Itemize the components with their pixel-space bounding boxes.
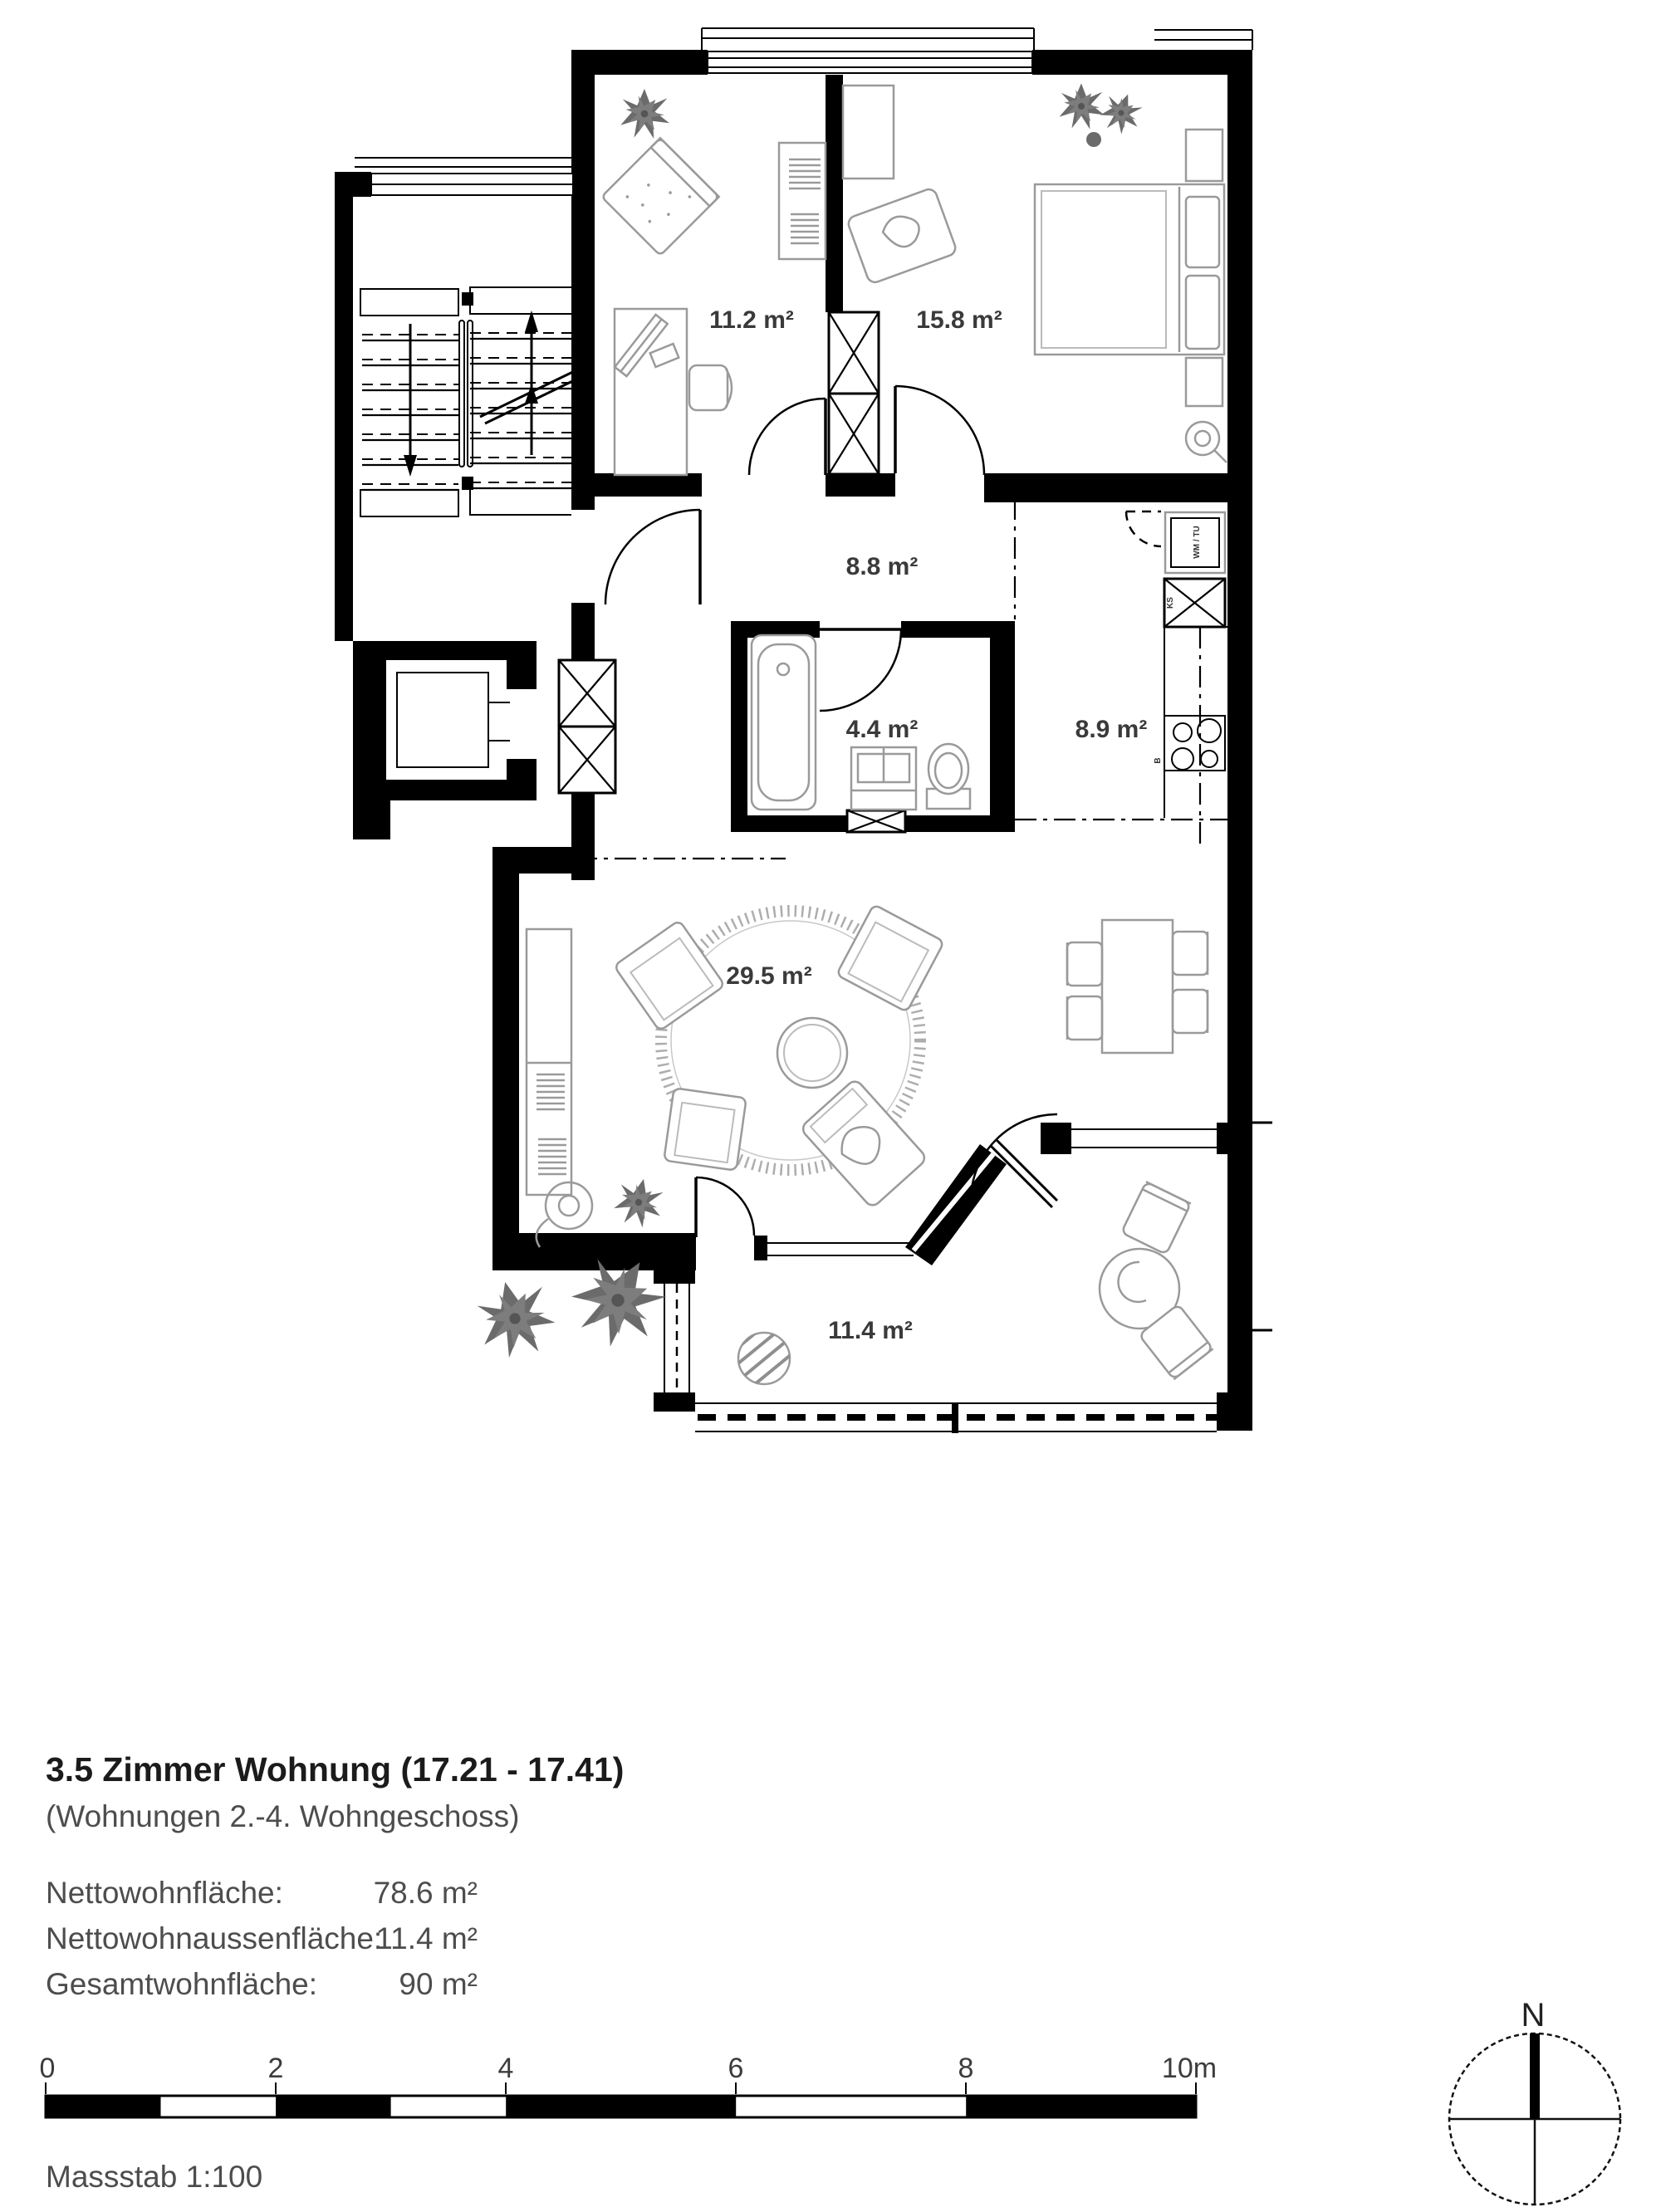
net-area-label: Nettowohnfläche: bbox=[46, 1876, 283, 1910]
bedroom-armchair bbox=[846, 187, 958, 284]
wall-symbol bbox=[1186, 422, 1227, 462]
north-compass: N bbox=[1449, 1997, 1620, 2205]
cooktop bbox=[1164, 716, 1225, 771]
outdoor-area-label: Nettowohnaussenfläche: bbox=[46, 1921, 382, 1955]
washbasin bbox=[851, 747, 916, 810]
living-area-label: 29.5 m² bbox=[726, 962, 811, 990]
terrace-area-label: 11.4 m² bbox=[828, 1317, 913, 1344]
info-block: 3.5 Zimmer Wohnung (17.21 - 17.41) (Wohn… bbox=[46, 1750, 624, 2001]
office-area-label: 11.2 m² bbox=[709, 306, 794, 334]
toilet bbox=[927, 744, 970, 809]
outdoor-area-value: 11.4 m² bbox=[375, 1921, 478, 1955]
scale-tick-0: 0 bbox=[40, 2053, 56, 2084]
sideboard bbox=[527, 929, 571, 1195]
side-table bbox=[777, 1018, 847, 1088]
scale-tick-6: 6 bbox=[728, 2053, 744, 2084]
north-needle bbox=[1530, 2033, 1540, 2119]
entry-door-opening bbox=[571, 510, 595, 603]
scale-tick-10: 10m bbox=[1162, 2053, 1217, 2084]
stair-arrow-down bbox=[404, 324, 417, 477]
floorplan-page: WM / TU KS B bbox=[0, 0, 1661, 2212]
scale-tick-4: 4 bbox=[498, 2053, 514, 2084]
kitchen-fixtures: WM / TU KS B bbox=[1154, 512, 1227, 847]
bath-area-label: 4.4 m² bbox=[846, 716, 919, 743]
top-window bbox=[708, 51, 1032, 73]
total-area-label: Gesamtwohnfläche: bbox=[46, 1967, 317, 2001]
staircase bbox=[360, 287, 588, 516]
wardrobe bbox=[843, 86, 894, 179]
chaise-lounge bbox=[800, 1079, 928, 1209]
scale-caption: Massstab 1:100 bbox=[46, 2160, 262, 2194]
fridge-label: KS bbox=[1166, 597, 1175, 609]
terrace-chair bbox=[1139, 1304, 1213, 1380]
terrace-furniture bbox=[469, 1182, 1213, 1408]
washer-dryer-label: WM / TU bbox=[1193, 526, 1202, 558]
dining-table-set bbox=[1067, 920, 1208, 1053]
scale-tick-2: 2 bbox=[268, 2053, 284, 2084]
office-daybed bbox=[601, 138, 718, 255]
nightstand bbox=[1186, 358, 1222, 406]
floor-plan-drawing: WM / TU KS B bbox=[0, 0, 1661, 2212]
bathtub bbox=[752, 635, 816, 810]
terrace-chair bbox=[1121, 1182, 1191, 1254]
total-area-value: 90 m² bbox=[399, 1967, 478, 2001]
living-furniture bbox=[527, 904, 1208, 1247]
bedroom-furniture bbox=[843, 83, 1227, 462]
plant-icon bbox=[620, 89, 669, 139]
hall-area-label: 8.8 m² bbox=[846, 553, 919, 580]
elevator bbox=[353, 641, 537, 800]
scale-tick-8: 8 bbox=[958, 2053, 974, 2084]
bedroom-area-label: 15.8 m² bbox=[916, 306, 1002, 334]
planter-pot bbox=[731, 1312, 811, 1408]
nightstand bbox=[1186, 130, 1222, 181]
office-chair bbox=[689, 365, 732, 410]
armchair bbox=[664, 1088, 746, 1170]
net-area-value: 78.6 m² bbox=[374, 1876, 478, 1910]
north-label: N bbox=[1521, 1997, 1546, 2033]
plan-subtitle: (Wohnungen 2.-4. Wohngeschoss) bbox=[46, 1799, 519, 1833]
office-furniture bbox=[601, 89, 826, 475]
plan-title: 3.5 Zimmer Wohnung (17.21 - 17.41) bbox=[46, 1750, 624, 1789]
hob-label: B bbox=[1154, 757, 1163, 763]
scale-bar: 0 2 4 6 8 10m Massstab 1:100 bbox=[40, 2053, 1218, 2194]
double-bed bbox=[1035, 184, 1224, 355]
kitchen-area-label: 8.9 m² bbox=[1075, 716, 1148, 743]
